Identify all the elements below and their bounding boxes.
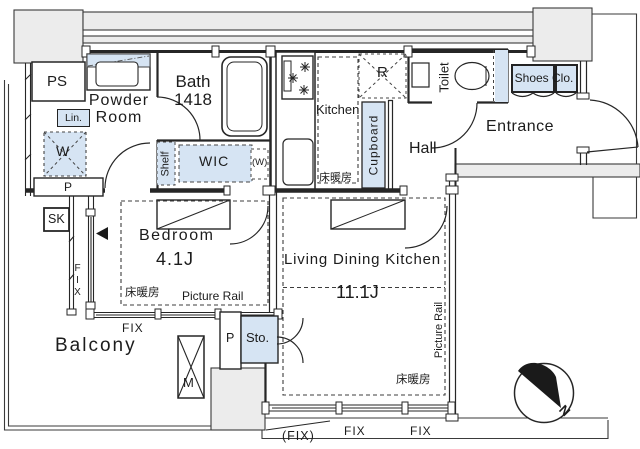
powder-room-door-arc xyxy=(105,143,150,188)
bedroom-floor-heating-label: 床暖房 xyxy=(125,284,160,300)
wall-entrance-south xyxy=(455,164,640,177)
entrance-door xyxy=(587,100,638,152)
bedroom-label: Bedroom xyxy=(139,227,214,245)
kitchen-heating-area xyxy=(318,57,358,183)
shoes-closet-door-arcs xyxy=(512,93,576,96)
picture-rail-label: Picture Rail xyxy=(182,289,243,303)
powder-room-label-1: Powder xyxy=(86,92,152,110)
wall-band-top xyxy=(83,12,535,30)
ps-label: PS xyxy=(47,73,67,90)
linen-label: Lin. xyxy=(65,112,82,124)
linen-box: Lin. xyxy=(57,109,90,127)
floor-plan-drawing xyxy=(0,0,640,449)
fridge-label: R xyxy=(377,64,388,81)
fix-bottom-label-2: FIX xyxy=(410,424,432,438)
vanity xyxy=(87,54,150,90)
bedroom-door-arc xyxy=(230,206,268,244)
shoes-closet-label: Shoes Clo. xyxy=(510,71,578,85)
ldk-label: Living Dining Kitchen xyxy=(284,251,441,268)
kitchen-sink xyxy=(283,139,313,185)
bedroom-size-label: 4.1J xyxy=(156,249,194,270)
toilet-label-wrap: Toilet xyxy=(433,52,455,102)
wic-label: WIC xyxy=(199,153,229,169)
toilet-tank xyxy=(412,63,429,87)
entrance-label: Entrance xyxy=(486,118,554,136)
meter-label: M xyxy=(183,375,194,390)
kitchen-floor-heating-label: 床暖房 xyxy=(319,169,352,185)
closet-doors xyxy=(157,200,405,229)
cupboard-label: Cupboard xyxy=(367,115,381,176)
toilet-label: Toilet xyxy=(437,62,452,92)
fix-paren-label: (FIX) xyxy=(282,429,315,443)
shelf-label: Shelf xyxy=(160,151,172,176)
fix-bedroom-label: FIX xyxy=(122,321,144,335)
balcony-label: Balcony xyxy=(55,335,137,357)
shelf-label-wrap: Shelf xyxy=(157,142,175,185)
toilet-door-arc xyxy=(432,103,477,148)
storage-door-arcs xyxy=(277,318,303,363)
bathtub xyxy=(222,57,267,136)
washer-alt-label: (W) xyxy=(252,157,267,168)
toilet-fixture xyxy=(412,50,508,102)
section-marker-icon xyxy=(96,227,108,240)
sk-label: SK xyxy=(48,212,65,226)
ldk-size-label: 11.1J xyxy=(336,282,379,303)
wall-block-top-left xyxy=(14,10,83,63)
floor-plan: PS Powder Room Lin. W P SK Bath 1418 She… xyxy=(0,0,640,449)
pipe-left-label: P xyxy=(64,180,72,194)
fix-left-label: FIX xyxy=(72,263,83,299)
ldk-floor-heating-label: 床暖房 xyxy=(396,371,431,387)
hall-label: Hall xyxy=(409,140,437,158)
kitchen-label: Kitchen xyxy=(316,102,359,117)
wall-block-top-right xyxy=(533,8,592,61)
bath-size-label: 1418 xyxy=(163,90,223,110)
pillar-bottom xyxy=(211,368,265,430)
washer-label: W xyxy=(56,143,69,159)
wall-band-strip xyxy=(83,36,535,43)
bath-label: Bath xyxy=(163,72,223,92)
kitchen-counter xyxy=(276,52,315,189)
powder-room-label-2: Room xyxy=(86,109,152,127)
storage-label: Sto. xyxy=(246,330,269,345)
toilet-bowl xyxy=(455,63,489,90)
cupboard-label-wrap: Cupboard xyxy=(362,102,385,188)
pipe-bottom-label: P xyxy=(226,331,234,345)
fix-bottom-label-1: FIX xyxy=(344,424,366,438)
picture-rail-vertical-wrap: Picture Rail xyxy=(431,288,448,372)
picture-rail-vertical-label: Picture Rail xyxy=(434,302,446,358)
ldk-door-arc xyxy=(405,206,447,248)
